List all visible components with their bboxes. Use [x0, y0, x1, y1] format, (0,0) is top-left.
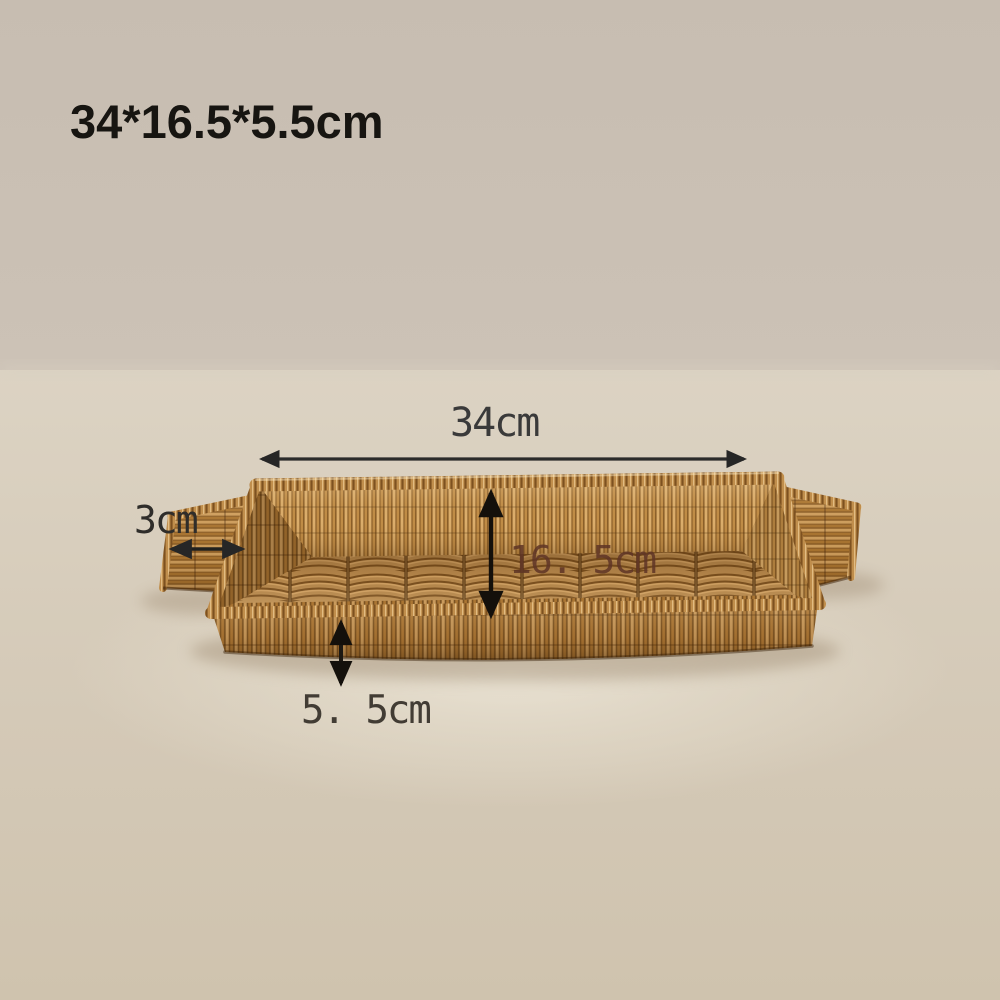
- inner-depth-label: 16. 5cm: [509, 541, 655, 579]
- size-title: 34*16.5*5.5cm: [70, 98, 384, 145]
- side-height-label: 5. 5cm: [301, 691, 430, 730]
- width-label: 34cm: [450, 403, 538, 443]
- handle-width-label: 3cm: [134, 501, 197, 539]
